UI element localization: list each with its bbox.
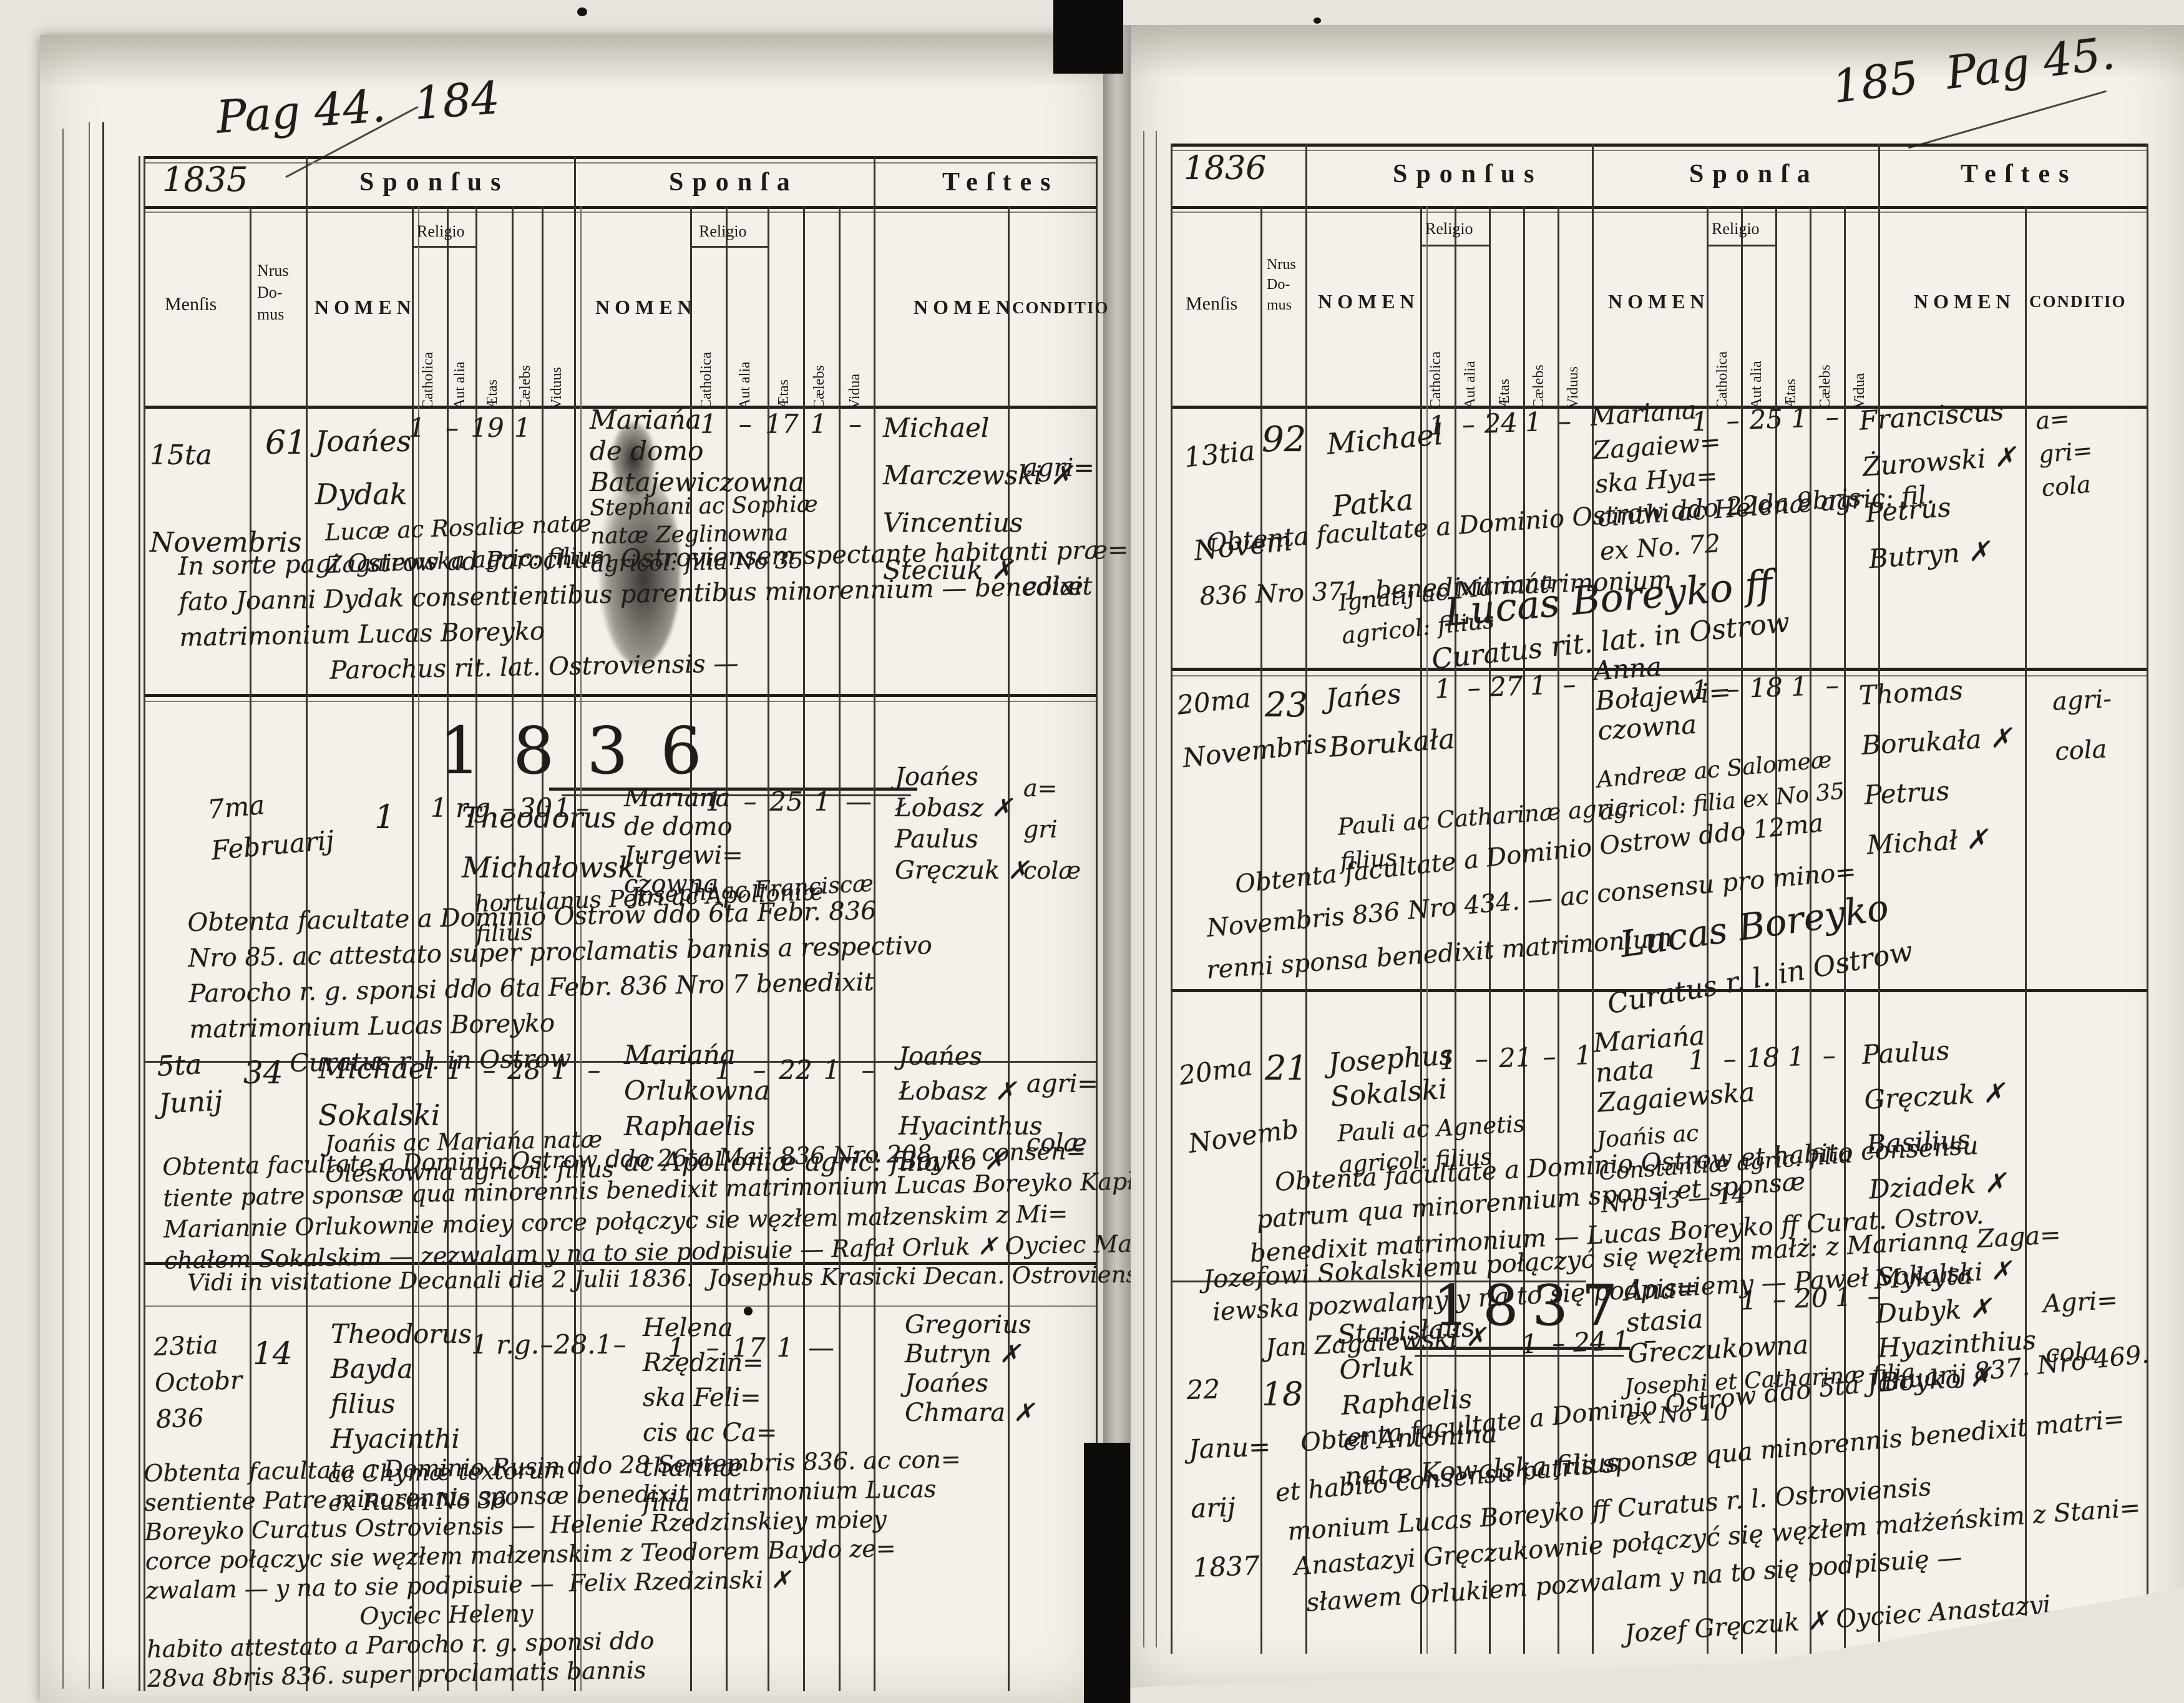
mark: 1 (1782, 671, 1816, 703)
witness-nomen-header: NOMEN (914, 296, 1015, 319)
mark: 1 (505, 412, 540, 443)
mark: 30 (519, 793, 552, 823)
record-note-line: Jozef Gręczuk ✗ Oyciec Anastazyi (1624, 1590, 2052, 1649)
mark: 24 (1484, 407, 1518, 439)
column-rule (1305, 144, 1307, 1654)
bride-religio-marks: 1–181– (1680, 1040, 1846, 1076)
bride-vidua-header: Vidua (847, 250, 864, 409)
bride-religio-marks: 1–251– (1683, 401, 1850, 437)
mensis-header: Menſis (1186, 293, 1237, 315)
year-label: 1836 (1184, 150, 1266, 187)
mark: – (434, 412, 469, 443)
year-heading: 1836 (439, 713, 734, 789)
record-separator (144, 1305, 1096, 1307)
witnesses-names: Franciscus Żurowski ✗ Petrus Butryn ✗ (1858, 388, 2024, 582)
religio-underline (690, 246, 768, 248)
witnesses-conditio: agri- cola (2051, 674, 2115, 777)
bride-religio-marks: 1–171– (690, 409, 874, 439)
mark: 1 (800, 409, 837, 439)
witnesses-names: Thomas Borukała ✗ Petrus Michał ✗ (1858, 663, 2018, 870)
mark: 17 (731, 1332, 767, 1363)
house-number-header: Nrus Do- mus (257, 260, 289, 325)
mark: – (741, 1055, 778, 1085)
mark: 1 (1421, 409, 1453, 441)
year-label: 1835 (162, 160, 248, 199)
mark: 1 (596, 1329, 613, 1360)
left-page: Pag 44. 184 (40, 35, 1103, 1703)
record-house-number: 18 (1262, 1376, 1303, 1413)
sponsa-header: Sponſa (669, 167, 799, 197)
groom-autalia-header: Aut alia (452, 250, 469, 409)
witness-nomen-header: NOMEN (1914, 290, 2016, 313)
right-page: 185 Pag 45. (1131, 25, 2184, 1687)
groom-catholica-header: Catholica (420, 250, 437, 409)
mark: – (472, 1055, 507, 1085)
row-rule (144, 206, 1096, 209)
bride-nomen-header: NOMEN (1608, 290, 1710, 313)
mark: 1 (1514, 1328, 1544, 1360)
bride-caelebs-header: Cælebs (811, 250, 828, 409)
mark: 28 (507, 1055, 542, 1085)
mark: 1 (1828, 1281, 1860, 1313)
mark: 1 r.g. (471, 1329, 539, 1360)
spine-binding-bottom (1084, 1443, 1130, 1703)
groom-name: Michael Sokalski (318, 1045, 440, 1139)
mark: – (1815, 670, 1850, 701)
mark (540, 412, 575, 443)
row-rule (1171, 212, 2147, 213)
record-house-number: 61 (265, 424, 306, 462)
row-rule (144, 212, 1096, 213)
mark: 25 (768, 786, 804, 817)
groom-religio-marks: 1 r.g.–28.1– (471, 1329, 627, 1360)
mark: 19 (470, 412, 505, 443)
groom-catholica-header: Catholica (1428, 250, 1445, 409)
row-rule (1171, 206, 2147, 209)
groom-religio-marks: 1–191 (399, 412, 575, 443)
scan-shadow (40, 35, 1103, 88)
bride-religio-marks: 1–251— (696, 786, 877, 817)
mensis-header: Menſis (165, 294, 217, 315)
conditio-header: CONDITIO (1012, 298, 1109, 318)
bride-religio-marks: 1–171— (658, 1332, 839, 1363)
ink-speck (1314, 17, 1321, 24)
bride-religio-marks: 1–181– (1683, 670, 1850, 706)
groom-religio-header: Religio (417, 222, 465, 241)
mark: – (695, 1332, 731, 1363)
bride-nomen-header: NOMEN (595, 296, 697, 319)
bride-aetas-header: Ætas (776, 250, 792, 409)
mark: 1 (1517, 406, 1549, 438)
row-rule (1171, 150, 2147, 151)
record-house-number: 14 (253, 1335, 293, 1372)
mark: – (539, 1329, 554, 1360)
bride-catholica-header: Catholica (1714, 250, 1731, 409)
witnesses-names: Paulus Gręczuk ✗ Basilius Dziadek ✗ (1861, 1025, 2011, 1212)
mark: 1 (1523, 670, 1554, 701)
record-mensis: 23tia Octobr 836 (153, 1326, 244, 1438)
mark: 1 (705, 1055, 741, 1085)
mark: – (1532, 1040, 1567, 1072)
mark: — (803, 1332, 839, 1363)
mark: 18 (1746, 1042, 1780, 1073)
record-note: Obtenta facultata a Dominio Rusin ddo 28… (144, 1445, 965, 1694)
groom-autalia-header: Aut alia (1462, 250, 1479, 409)
mark: 1 (690, 409, 727, 439)
bride-aetas-header: Ætas (1783, 250, 1800, 409)
bride-autalia-header: Aut alia (1748, 250, 1765, 409)
mark: 1 (399, 412, 434, 443)
record-separator (144, 694, 1096, 697)
mark: 1 (1779, 1041, 1813, 1073)
mark: 1 (1782, 403, 1816, 434)
mark: – (1458, 672, 1490, 704)
record-house-number: 92 (1262, 419, 1306, 460)
groom-aetas-header: Ætas (1496, 250, 1513, 409)
groom-religio-header: Religio (1425, 220, 1473, 238)
mark: 17 (764, 409, 801, 439)
mark: 25 (1749, 403, 1783, 435)
mark: 22 (778, 1055, 814, 1085)
groom-caelebs-header: Cælebs (517, 250, 534, 409)
bride-catholica-header: Catholica (698, 250, 715, 409)
row-rule (1171, 144, 2147, 147)
mark: – (1716, 404, 1750, 436)
record-house-number: 23 (1265, 685, 1308, 725)
column-rule (139, 156, 140, 1691)
sponsus-header: Sponſus (1393, 159, 1543, 189)
register-scan: Pag 44. 184 (0, 0, 2184, 1703)
margin-rule (1156, 131, 1157, 1647)
mark: – (1815, 401, 1850, 433)
mark: 24 (1572, 1326, 1607, 1358)
mark: 20 (1794, 1282, 1828, 1314)
groom-aetas-header: Ætas (484, 250, 501, 409)
bride-religio-header: Religio (1712, 220, 1760, 238)
groom-viduus-header: Viduus (548, 250, 565, 409)
ink-speck (744, 1307, 753, 1315)
religio-underline (412, 246, 475, 248)
mark: – (850, 1055, 886, 1085)
bride-religio-marks: 1–221– (705, 1055, 886, 1085)
mark: 27 (1489, 671, 1523, 703)
margin-rule (62, 129, 64, 1689)
sponsa-header: Sponſa (1689, 159, 1819, 189)
ink-speck (577, 7, 587, 16)
mark: 1 r.g. (431, 793, 499, 823)
mark: – (1544, 1327, 1574, 1359)
witnesses-conditio: a= gri colæ (1023, 768, 1081, 891)
column-rule (1171, 144, 1172, 1654)
witnesses-names: Gregorius Butryn ✗ Joańes Chmara ✗ (905, 1310, 1034, 1428)
mark: – (837, 409, 874, 439)
mark: – (573, 793, 593, 823)
mark: 1 (1733, 1284, 1765, 1316)
bride-name: Ana= stasia Greczukowna (1624, 1267, 1809, 1370)
groom-religio-marks: 1–241– (1421, 405, 1581, 441)
groom-nomen-header: NOMEN (314, 296, 416, 319)
mark: — (841, 786, 877, 817)
record-separator (144, 701, 1096, 702)
bride-autalia-header: Aut alia (737, 250, 754, 409)
sponsus-header: Sponſus (359, 167, 509, 197)
mark: 1 (767, 1332, 803, 1363)
record-house-number: 34 (243, 1055, 283, 1091)
mark: 1 (658, 1332, 695, 1363)
mark: – (1716, 673, 1750, 705)
record-note: In sorte pagi Ostrow ad Parochum Ostrovi… (178, 532, 1131, 691)
mark: – (499, 793, 519, 823)
mark: – (1452, 408, 1484, 440)
mark: 1 (1427, 673, 1459, 705)
mark: – (1549, 405, 1581, 437)
margin-rule (89, 122, 90, 1689)
house-number-header: Nrus Do- mus (1267, 255, 1296, 315)
testes-header: Teſtes (1961, 159, 2077, 189)
mark: – (732, 786, 768, 817)
mark: 1 (696, 786, 732, 817)
mark: – (727, 409, 764, 439)
groom-name: Joańes Dydak (315, 415, 411, 521)
mark: 28. (554, 1329, 596, 1360)
conditio-header: CONDITIO (2029, 292, 2127, 311)
mark: 1 (1430, 1044, 1465, 1076)
testes-header: Teſtes (942, 167, 1059, 197)
groom-religio-marks: 1–271– (1427, 668, 1586, 705)
mark: – (1464, 1043, 1499, 1075)
margin-rule (102, 122, 104, 1689)
mark: – (1713, 1043, 1747, 1075)
record-note: Obtenta facultate a Dominio Ostrow ddo 2… (162, 1133, 1209, 1276)
margin-rule (1143, 131, 1144, 1647)
record-house-number: 21 (1265, 1048, 1308, 1088)
groom-religio-marks: 1–281– (437, 1055, 612, 1085)
groom-religio-marks: 1–21–1 (1430, 1040, 1601, 1076)
bride-religio-marks: 1–201– (1733, 1280, 1890, 1316)
row-rule (144, 162, 1096, 163)
mark: 18 (1749, 671, 1783, 703)
groom-viduus-header: Viduus (1565, 250, 1582, 409)
mark: 21 (1498, 1042, 1533, 1073)
record-mensis: 7ma Februarij (206, 779, 336, 872)
groom-caelebs-header: Cælebs (1531, 250, 1548, 409)
groom-name: Theodorus Bayda filius Hyacinthi (331, 1317, 472, 1457)
record-house-number: 1 (374, 799, 395, 836)
mark: – (1763, 1284, 1795, 1315)
record-mensis: 5ta Junij (156, 1045, 223, 1123)
bride-religio-header: Religio (699, 222, 747, 241)
mark: – (1553, 668, 1585, 700)
mark: – (612, 1329, 627, 1360)
mark: 1 (804, 786, 841, 817)
column-rule (2147, 144, 2148, 1654)
mark: 1 (437, 1055, 472, 1085)
mark: 1 (814, 1055, 850, 1085)
mark: 1 (1680, 1044, 1714, 1076)
groom-religio-marks: 1 r.g.–301– (431, 793, 593, 823)
mark: – (577, 1055, 612, 1085)
witnesses-conditio: a= gri= cola (2034, 399, 2097, 505)
row-rule (144, 156, 1096, 159)
mark: 1 (1683, 406, 1717, 437)
mark: 1 (542, 1055, 577, 1085)
mark: 1 (1683, 674, 1717, 706)
groom-nomen-header: NOMEN (1318, 290, 1420, 313)
mark: 1 (552, 793, 572, 823)
spine-binding-top (1053, 0, 1123, 74)
witnesses-names: Joańes Łobasz ✗ Paulus Gręczuk ✗ (895, 761, 1028, 886)
mark: – (1812, 1040, 1846, 1071)
